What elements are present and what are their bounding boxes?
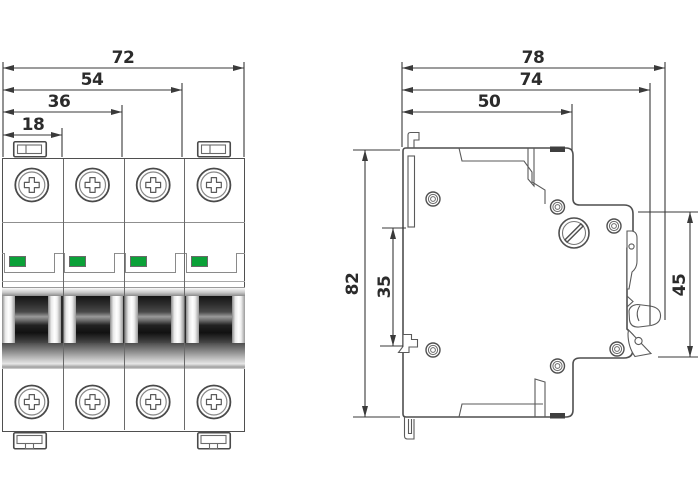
side-body-outline <box>403 148 633 417</box>
dim-label-width-2pole: 36 <box>48 92 71 112</box>
lever-guard-tab <box>627 231 637 289</box>
status-indicator-window <box>9 256 26 268</box>
dim-label-height-total: 82 <box>343 273 363 296</box>
pole-toggle <box>61 296 122 343</box>
dim-label-depth-body: 50 <box>478 92 501 112</box>
pole-divider <box>184 159 185 430</box>
toggle-handle <box>232 296 245 343</box>
toggle-handle <box>110 296 123 343</box>
padlock-hole <box>629 244 634 249</box>
flag-hole <box>635 337 642 344</box>
side-view <box>399 133 661 440</box>
rail-slot <box>408 156 415 227</box>
toggle-recess <box>199 296 232 343</box>
din-tab-bottom <box>405 417 415 439</box>
din-clip-top-left <box>14 142 47 157</box>
toggle-handle <box>2 296 15 343</box>
dim-label-depth-lever: 74 <box>520 70 543 90</box>
slotted-case-screw <box>559 218 589 248</box>
toggle-handle <box>63 296 76 343</box>
toggle-handle <box>125 296 138 343</box>
toggle-handle <box>48 296 61 343</box>
side-view-dimensions <box>353 62 698 417</box>
lever-flag <box>628 330 651 357</box>
spring-clip-hook <box>399 335 418 353</box>
toggle-recess <box>15 296 48 343</box>
bottom-marking <box>550 413 565 419</box>
din-tab-top <box>408 133 419 149</box>
din-clip-top-right <box>198 142 231 157</box>
toggle-handle <box>186 296 199 343</box>
status-indicator-window <box>191 256 208 268</box>
din-clip-bottom-right <box>198 433 231 449</box>
dim-label-width-1pole: 18 <box>22 115 45 135</box>
dim-label-width-3pole: 54 <box>81 70 104 90</box>
front-view-dimensions <box>3 62 244 157</box>
din-clip-bottom-left <box>14 433 47 449</box>
toggle-handle <box>171 296 184 343</box>
status-indicator-window <box>130 256 147 268</box>
drawing-canvas: 72 54 36 18 78 74 50 82 35 45 <box>0 0 700 500</box>
pole-divider <box>124 159 125 430</box>
pole-toggle <box>2 296 61 343</box>
status-indicator-window <box>69 256 86 268</box>
toggle-knob <box>629 305 661 328</box>
toggle-recess <box>138 296 171 343</box>
dim-label-rail-slot: 35 <box>375 276 395 299</box>
pole-toggle <box>184 296 245 343</box>
case-rivets <box>426 192 624 373</box>
top-marking <box>550 147 565 153</box>
pole-toggle <box>123 296 184 343</box>
dim-label-width-total: 72 <box>112 48 135 68</box>
toggle-recess <box>76 296 109 343</box>
dim-label-face-height: 45 <box>670 274 690 297</box>
pole-divider <box>63 159 64 430</box>
dim-label-depth-max: 78 <box>522 48 545 68</box>
